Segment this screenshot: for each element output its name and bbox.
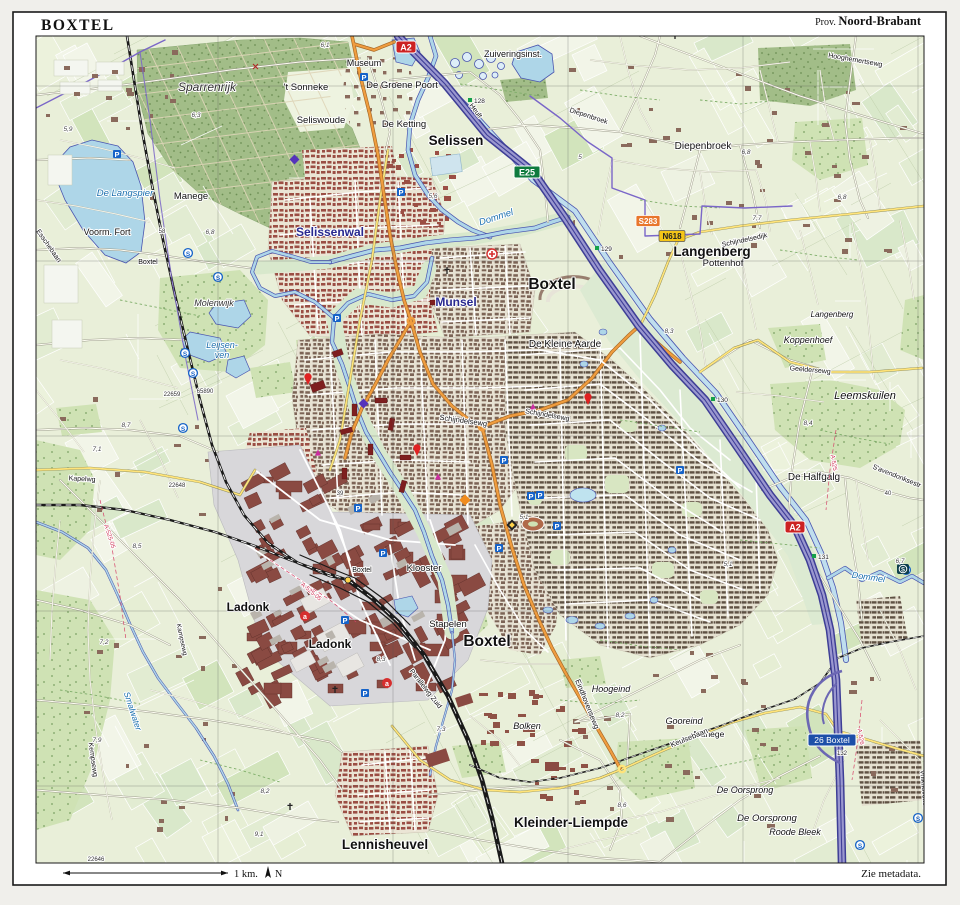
- svg-text:Hoogeind: Hoogeind: [592, 684, 632, 694]
- svg-text:P: P: [537, 491, 542, 500]
- svg-text:Molenwijk: Molenwijk: [194, 298, 234, 308]
- svg-text:Leijsen-: Leijsen-: [206, 340, 238, 350]
- svg-text:22659: 22659: [164, 392, 181, 398]
- svg-text:22648: 22648: [169, 483, 186, 489]
- svg-text:P: P: [362, 689, 367, 698]
- svg-text:39: 39: [337, 491, 344, 497]
- svg-text:P: P: [380, 549, 385, 558]
- svg-text:Boxtel: Boxtel: [138, 259, 158, 266]
- svg-text:a: a: [303, 614, 307, 621]
- svg-text:6,8: 6,8: [837, 194, 846, 201]
- svg-text:P: P: [355, 504, 360, 513]
- svg-text:7,3: 7,3: [436, 726, 445, 733]
- svg-text:Prov. Noord-Brabant: Prov. Noord-Brabant: [815, 14, 922, 28]
- svg-text:A2: A2: [789, 522, 801, 532]
- svg-text:Diepenbroek: Diepenbroek: [675, 141, 733, 152]
- svg-text:Kleinder-Liempde: Kleinder-Liempde: [514, 815, 629, 830]
- svg-text:De Kleine Aarde: De Kleine Aarde: [529, 339, 602, 350]
- svg-text:5,9: 5,9: [63, 126, 72, 133]
- svg-text:a: a: [385, 681, 389, 688]
- svg-text:Stapelen: Stapelen: [429, 619, 467, 630]
- svg-text:A2: A2: [400, 42, 412, 52]
- svg-text:De Oorsprong: De Oorsprong: [737, 813, 797, 824]
- svg-text:P: P: [334, 314, 339, 323]
- svg-text:Leemskuilen: Leemskuilen: [834, 390, 896, 402]
- svg-text:Manege: Manege: [174, 191, 208, 202]
- svg-text:Klooster: Klooster: [407, 563, 442, 574]
- svg-text:22646: 22646: [88, 857, 105, 863]
- svg-text:7,1: 7,1: [92, 446, 101, 453]
- svg-text:Selissenwal: Selissenwal: [296, 225, 364, 239]
- svg-text:S: S: [181, 426, 186, 433]
- svg-text:7,7: 7,7: [752, 215, 761, 222]
- svg-text:58: 58: [159, 229, 166, 235]
- svg-text:6,8: 6,8: [205, 229, 214, 236]
- svg-text:P: P: [554, 522, 559, 531]
- svg-text:6,7: 6,7: [895, 558, 904, 565]
- svg-text:8,3: 8,3: [664, 328, 673, 335]
- svg-text:8,6: 8,6: [617, 802, 626, 809]
- svg-text:Roode Bleek: Roode Bleek: [769, 827, 821, 837]
- svg-text:Sparrenrijk: Sparrenrijk: [178, 80, 237, 94]
- svg-text:P: P: [342, 616, 347, 625]
- svg-text:5,1: 5,1: [519, 514, 528, 521]
- svg-text:132: 132: [837, 751, 848, 757]
- svg-text:Langenberg: Langenberg: [811, 310, 854, 319]
- svg-text:Zuiveringsinst.: Zuiveringsinst.: [484, 49, 542, 59]
- svg-text:6,3: 6,3: [191, 112, 200, 119]
- svg-text:7,2: 7,2: [99, 639, 108, 646]
- svg-text:P: P: [496, 544, 501, 553]
- svg-text:9,1: 9,1: [254, 831, 263, 838]
- svg-text:P: P: [398, 188, 403, 197]
- svg-text:8,4: 8,4: [803, 420, 812, 427]
- svg-text:Seliswoude: Seliswoude: [297, 115, 346, 126]
- svg-text:129: 129: [601, 246, 612, 253]
- svg-text:S: S: [216, 275, 221, 282]
- svg-text:Boxtel: Boxtel: [352, 567, 372, 574]
- svg-text:Voorm. Fort: Voorm. Fort: [83, 227, 131, 237]
- svg-text:De Groene Poort: De Groene Poort: [366, 80, 438, 91]
- svg-text:Zie metadata.: Zie metadata.: [861, 868, 921, 880]
- svg-text:8,5: 8,5: [132, 543, 141, 550]
- svg-text:131: 131: [818, 554, 829, 561]
- svg-text:5,1: 5,1: [723, 561, 732, 568]
- svg-text:Boxtel: Boxtel: [528, 276, 575, 293]
- svg-text:Selissen: Selissen: [429, 133, 484, 148]
- svg-text:P: P: [677, 466, 682, 475]
- svg-text:Ladonk: Ladonk: [309, 637, 352, 651]
- svg-text:P: P: [501, 456, 506, 465]
- svg-text:65890: 65890: [197, 389, 214, 395]
- svg-text:S: S: [901, 568, 905, 574]
- svg-text:S: S: [858, 843, 863, 850]
- svg-text:BOXTEL: BOXTEL: [41, 17, 115, 34]
- svg-text:8,3: 8,3: [376, 656, 385, 663]
- svg-text:5,6: 5,6: [428, 193, 437, 200]
- svg-text:S: S: [186, 251, 191, 258]
- svg-text:De Ketting: De Ketting: [382, 119, 426, 130]
- svg-text:40: 40: [885, 491, 892, 497]
- svg-text:Langenberg: Langenberg: [673, 244, 750, 259]
- svg-text:Pottenhof: Pottenhof: [703, 258, 744, 269]
- svg-text:De Langspier: De Langspier: [97, 188, 154, 199]
- svg-text:N: N: [275, 869, 282, 880]
- svg-text:8,7: 8,7: [121, 422, 130, 429]
- svg-text:8,2: 8,2: [260, 788, 269, 795]
- svg-text:S: S: [916, 816, 921, 823]
- svg-text:De Halfgalg: De Halfgalg: [788, 472, 840, 483]
- svg-text:Kapelwg: Kapelwg: [68, 475, 95, 483]
- svg-text:Gooreind: Gooreind: [665, 716, 703, 726]
- svg-text:S: S: [183, 351, 188, 358]
- svg-text:Munsel: Munsel: [435, 295, 476, 309]
- svg-text:128: 128: [474, 98, 485, 105]
- svg-text:8,2: 8,2: [615, 712, 624, 719]
- svg-text:Koppenhoef: Koppenhoef: [784, 335, 834, 345]
- svg-text:Boxtel: Boxtel: [463, 633, 510, 650]
- svg-text:N618: N618: [662, 232, 682, 241]
- svg-text:26 Boxtel: 26 Boxtel: [814, 735, 850, 745]
- svg-text:S283: S283: [639, 217, 658, 226]
- svg-text:E25: E25: [519, 167, 535, 177]
- svg-text:S: S: [191, 371, 196, 378]
- svg-text:Bolken: Bolken: [513, 721, 541, 731]
- svg-text:ven: ven: [215, 350, 230, 360]
- svg-text:Museum: Museum: [347, 58, 382, 68]
- svg-text:Ladonk: Ladonk: [227, 600, 270, 614]
- svg-text:130: 130: [717, 397, 728, 404]
- svg-text:'t Sonneke: 't Sonneke: [284, 82, 329, 93]
- svg-text:7,9: 7,9: [92, 737, 101, 744]
- svg-text:P: P: [528, 492, 533, 501]
- svg-text:De Oorsprong: De Oorsprong: [717, 785, 774, 795]
- svg-text:6,1: 6,1: [320, 42, 329, 49]
- svg-text:Lennisheuvel: Lennisheuvel: [342, 837, 428, 852]
- svg-text:5: 5: [578, 154, 582, 161]
- svg-text:1 km.: 1 km.: [234, 869, 258, 880]
- svg-text:P: P: [114, 150, 119, 159]
